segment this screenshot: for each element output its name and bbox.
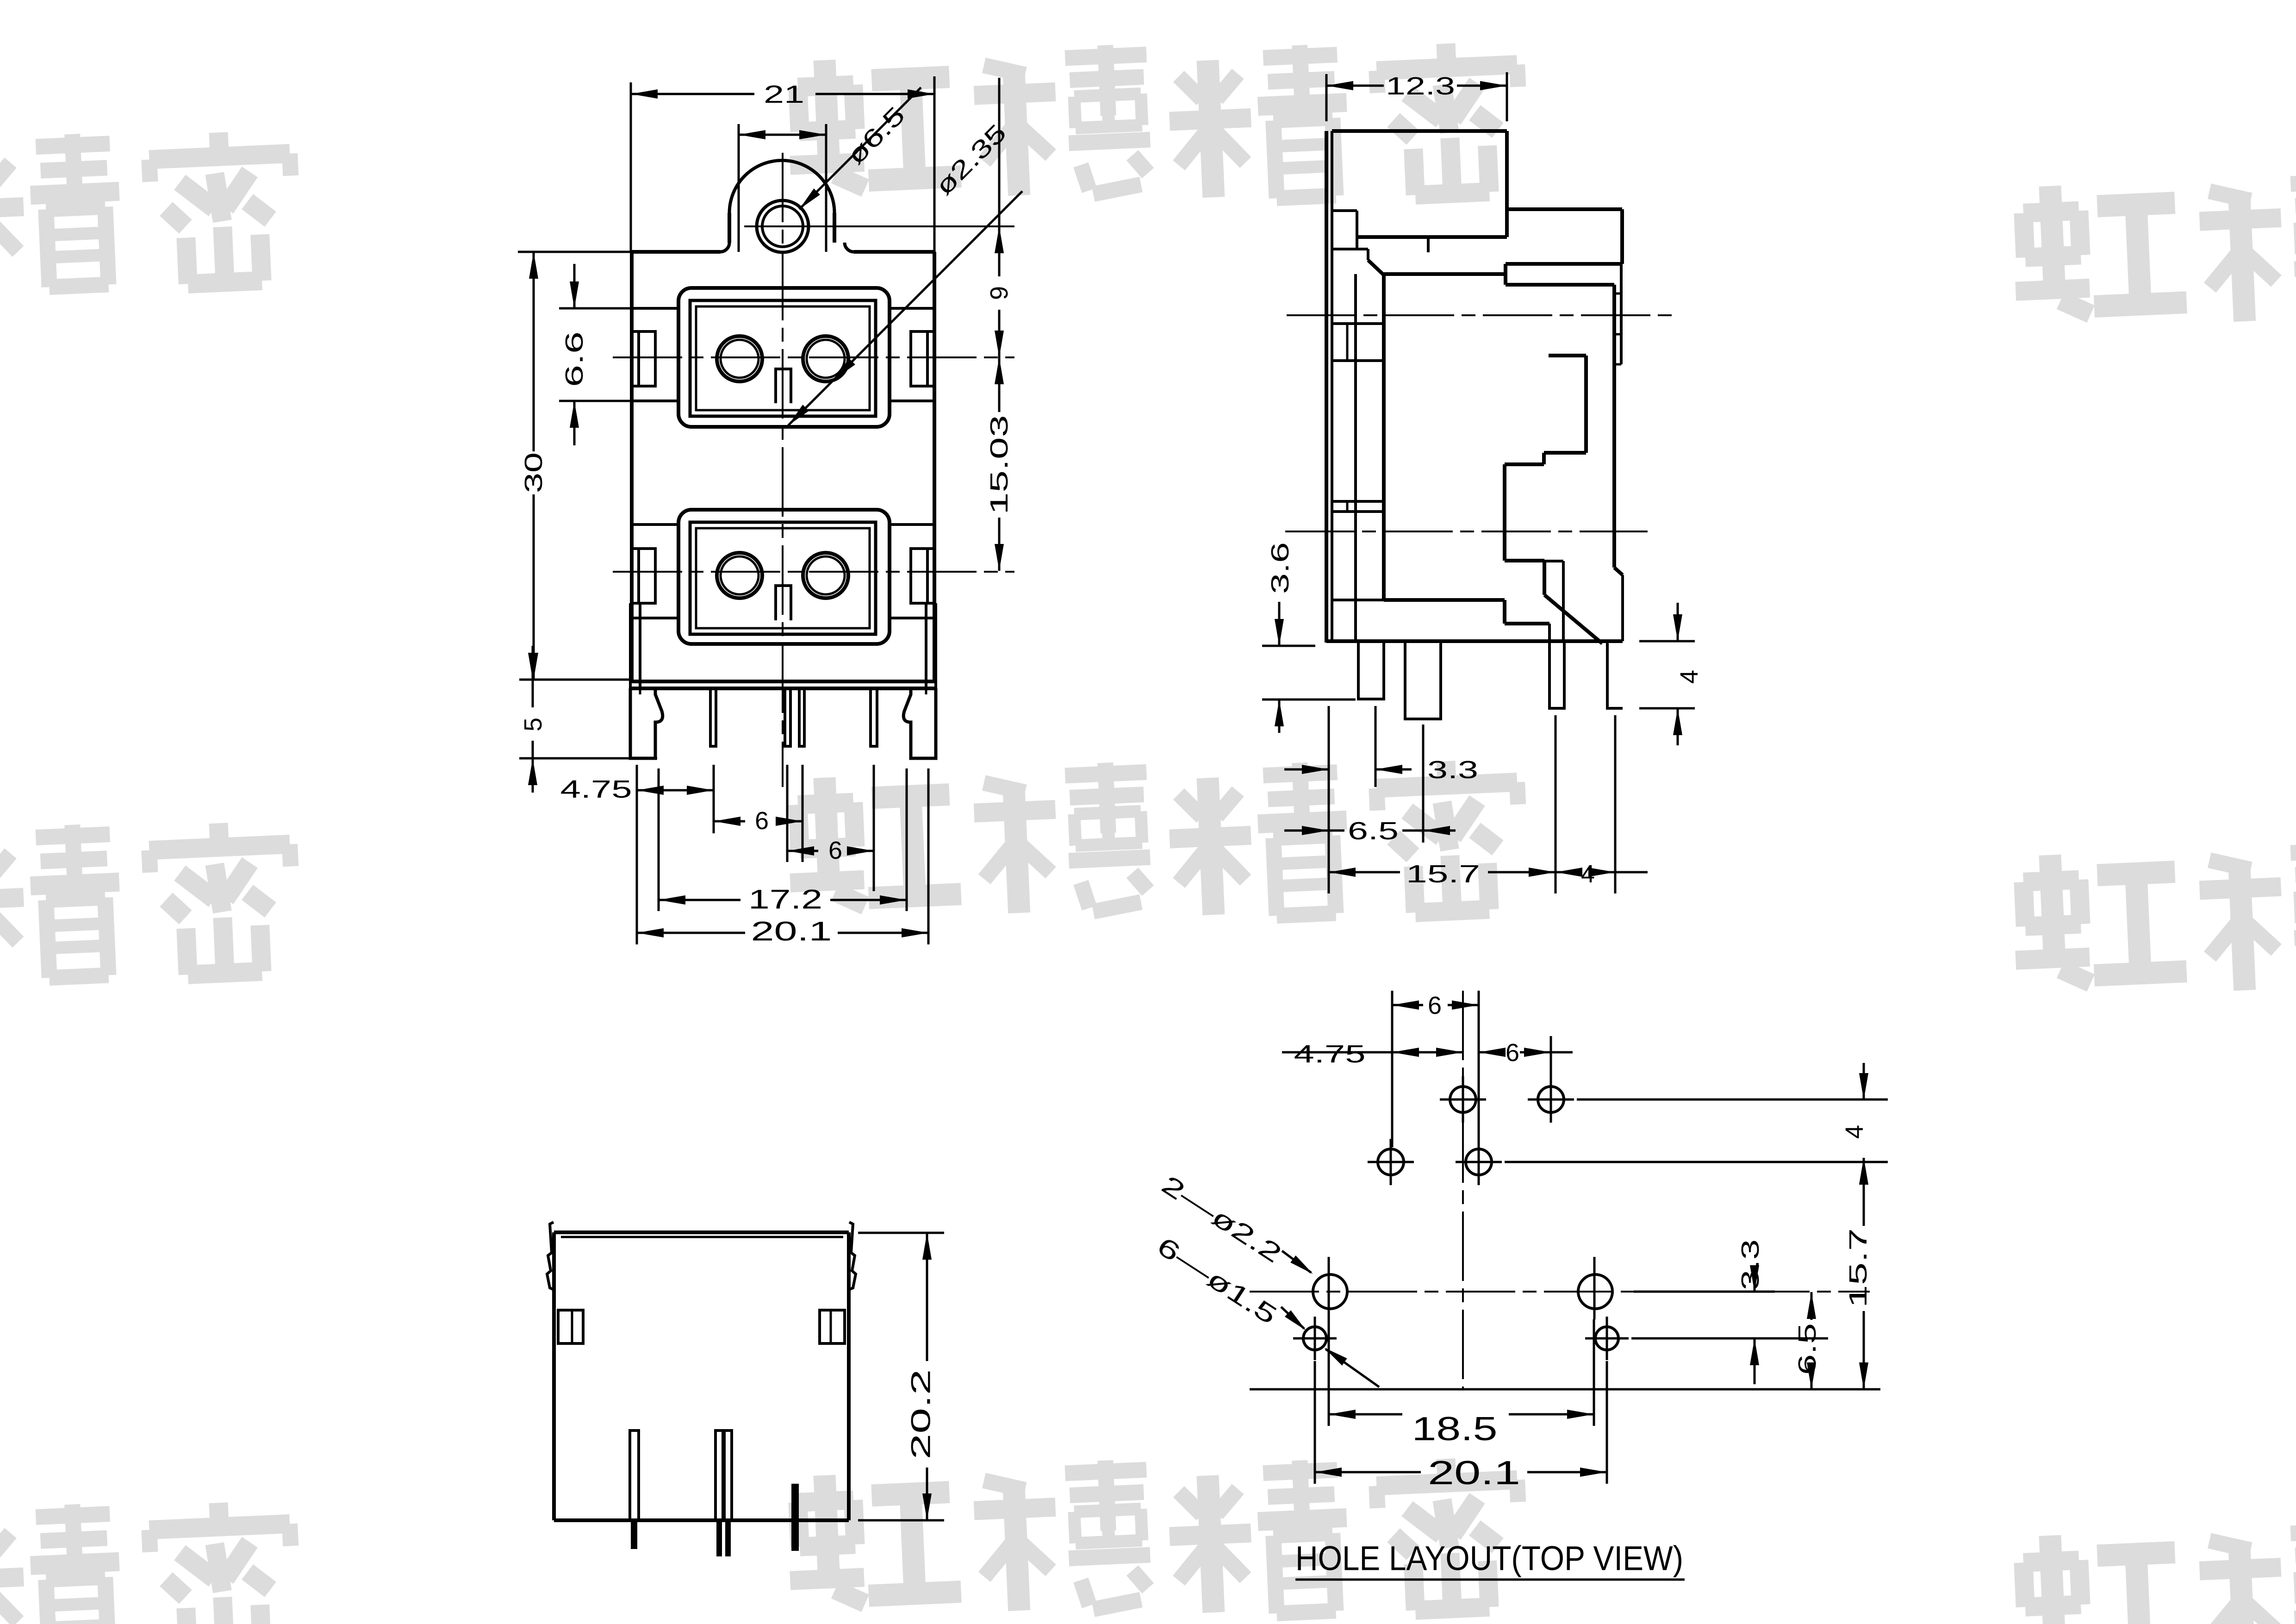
svg-text:4: 4 xyxy=(1581,860,1595,888)
svg-text:20.2: 20.2 xyxy=(906,1369,936,1460)
svg-text:6: 6 xyxy=(828,837,842,864)
svg-text:15.7: 15.7 xyxy=(1844,1228,1872,1308)
svg-text:9: 9 xyxy=(985,286,1013,300)
svg-text:6.6: 6.6 xyxy=(560,331,588,387)
svg-text:20.1: 20.1 xyxy=(1428,1455,1520,1492)
svg-text:21: 21 xyxy=(764,81,804,108)
svg-text:6: 6 xyxy=(1506,1039,1519,1067)
svg-text:30: 30 xyxy=(520,452,548,493)
svg-text:6: 6 xyxy=(755,807,769,835)
svg-text:4: 4 xyxy=(1841,1125,1868,1139)
svg-text:6.5: 6.5 xyxy=(1348,817,1399,845)
svg-text:17.2: 17.2 xyxy=(748,885,822,915)
svg-text:HOLE LAYOUT(TOP VIEW): HOLE LAYOUT(TOP VIEW) xyxy=(1295,1539,1683,1578)
svg-text:6: 6 xyxy=(1428,992,1442,1019)
svg-text:5: 5 xyxy=(519,718,547,731)
svg-text:4.75: 4.75 xyxy=(1294,1040,1366,1068)
svg-text:4: 4 xyxy=(1675,670,1703,684)
svg-text:15.03: 15.03 xyxy=(985,415,1013,515)
svg-text:3.3: 3.3 xyxy=(1736,1239,1764,1290)
svg-text:3.6: 3.6 xyxy=(1266,542,1294,594)
svg-text:20.1: 20.1 xyxy=(751,917,832,947)
svg-text:6.5: 6.5 xyxy=(1793,1323,1821,1375)
svg-text:3.3: 3.3 xyxy=(1427,756,1478,784)
svg-text:18.5: 18.5 xyxy=(1412,1411,1498,1448)
svg-text:4.75: 4.75 xyxy=(560,775,632,803)
svg-text:15.7: 15.7 xyxy=(1406,860,1480,888)
svg-text:12.3: 12.3 xyxy=(1386,72,1455,100)
